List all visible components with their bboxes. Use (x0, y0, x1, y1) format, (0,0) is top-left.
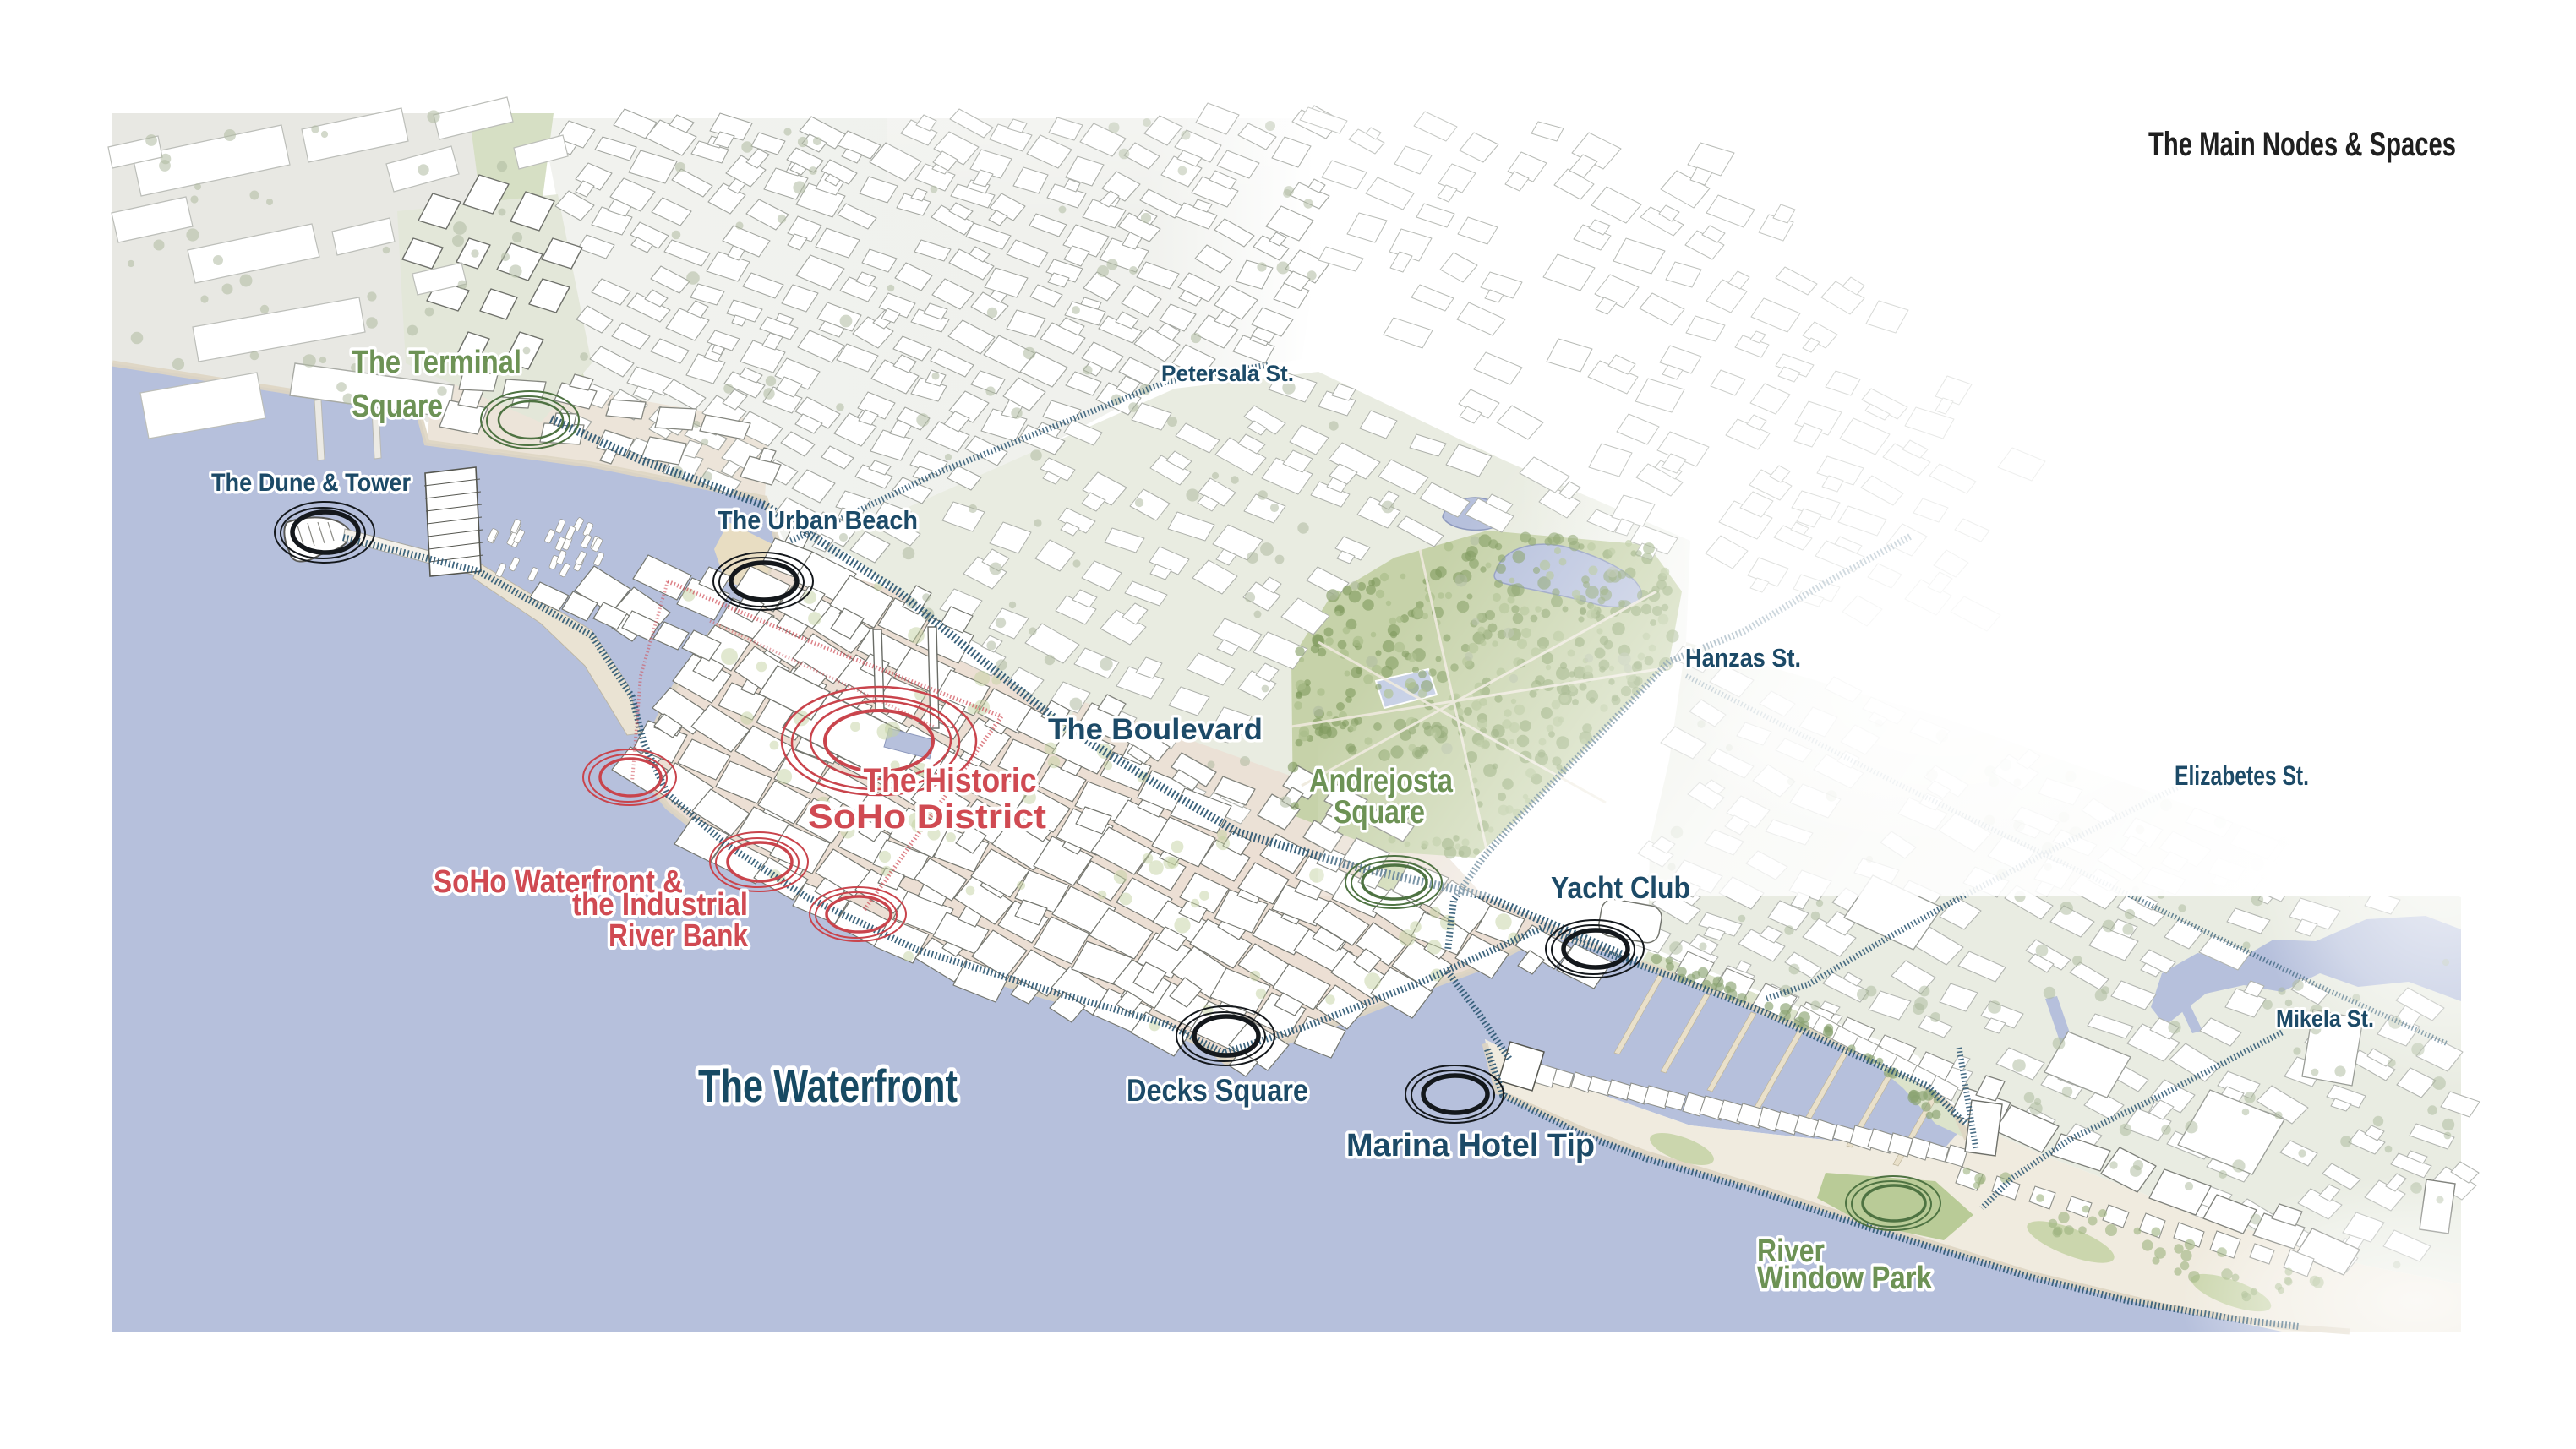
svg-text:Marina Hotel Tip: Marina Hotel Tip (1346, 1128, 1595, 1163)
svg-text:Square: Square (352, 389, 443, 424)
svg-text:The Urban Beach: The Urban Beach (718, 505, 918, 535)
svg-text:Mikela St.: Mikela St. (2276, 1005, 2374, 1032)
svg-text:Elizabetes St.: Elizabetes St. (2175, 760, 2309, 791)
svg-text:The Dune & Tower: The Dune & Tower (211, 469, 411, 497)
svg-text:Hanzas St.: Hanzas St. (1685, 643, 1801, 673)
svg-text:The Waterfront: The Waterfront (698, 1060, 958, 1112)
svg-text:the Industrial: the Industrial (572, 887, 748, 923)
svg-text:Square: Square (1334, 794, 1425, 831)
svg-text:Decks Square: Decks Square (1127, 1073, 1308, 1108)
svg-text:River Bank: River Bank (609, 918, 749, 954)
svg-text:The Historic: The Historic (864, 762, 1037, 799)
svg-text:The Terminal: The Terminal (352, 345, 521, 380)
svg-text:The Boulevard: The Boulevard (1048, 713, 1263, 746)
svg-text:Yacht Club: Yacht Club (1551, 870, 1690, 905)
svg-text:Petersala St.: Petersala St. (1161, 361, 1294, 386)
svg-text:Window Park: Window Park (1757, 1261, 1933, 1296)
svg-text:SoHo District: SoHo District (808, 798, 1046, 836)
svg-text:The Main Nodes & Spaces: The Main Nodes & Spaces (2148, 126, 2456, 163)
